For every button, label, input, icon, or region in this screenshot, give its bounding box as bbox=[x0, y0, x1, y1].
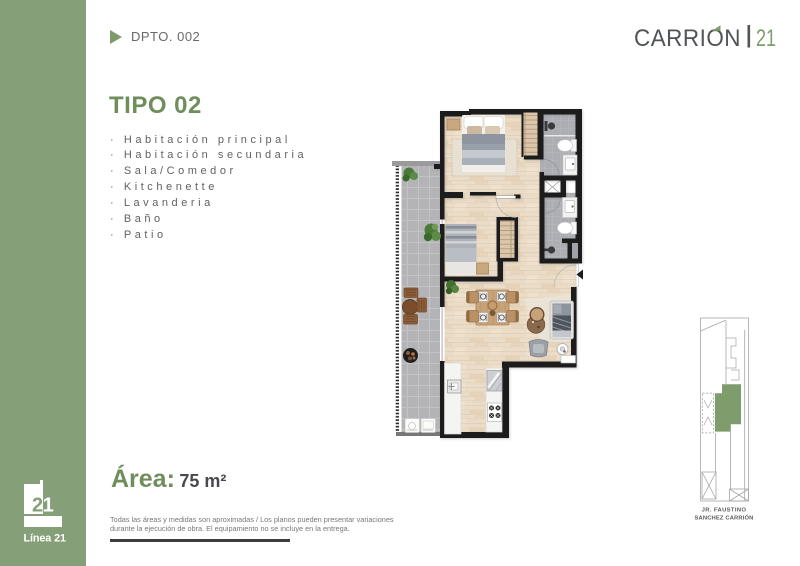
svg-text:SANCHEZ CARRIÓN: SANCHEZ CARRIÓN bbox=[695, 514, 754, 522]
svg-text:Línea 21: Línea 21 bbox=[24, 533, 67, 545]
svg-text:21: 21 bbox=[32, 495, 54, 517]
svg-text:CARRION: CARRION bbox=[634, 25, 741, 52]
svg-text:21: 21 bbox=[756, 25, 776, 52]
svg-text:JR. FAUSTINO: JR. FAUSTINO bbox=[702, 508, 747, 514]
